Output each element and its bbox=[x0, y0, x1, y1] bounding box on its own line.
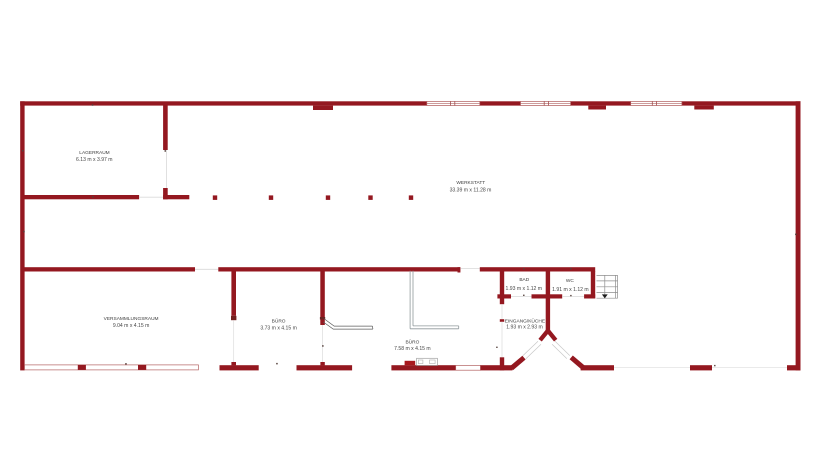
svg-text:EINGANG/KÜCHE: EINGANG/KÜCHE bbox=[505, 317, 545, 324]
svg-text:3.73 m x 4.15 m: 3.73 m x 4.15 m bbox=[260, 325, 297, 331]
svg-text:VERSAMMLUNGSRAUM: VERSAMMLUNGSRAUM bbox=[104, 316, 159, 322]
svg-text:33.39 m x 11.28 m: 33.39 m x 11.28 m bbox=[450, 187, 492, 193]
svg-text:1.93 m x 2.93 m: 1.93 m x 2.93 m bbox=[506, 325, 543, 331]
svg-text:1.91 m x 1.12 m: 1.91 m x 1.12 m bbox=[552, 287, 589, 293]
svg-text:LAGERRAUM: LAGERRAUM bbox=[79, 150, 109, 156]
svg-text:WERKSTATT: WERKSTATT bbox=[456, 180, 485, 186]
svg-text:BÜRO: BÜRO bbox=[272, 317, 286, 324]
svg-text:BÜRO: BÜRO bbox=[405, 338, 419, 345]
svg-text:WC: WC bbox=[566, 278, 575, 284]
svg-text:9.04 m x 4.15 m: 9.04 m x 4.15 m bbox=[113, 323, 150, 329]
svg-text:6.13 m x 3.97 m: 6.13 m x 3.97 m bbox=[76, 157, 113, 163]
svg-text:1.93 m x 1.12 m: 1.93 m x 1.12 m bbox=[506, 286, 543, 292]
svg-text:BAD: BAD bbox=[519, 277, 529, 283]
svg-text:7.58 m x 4.15 m: 7.58 m x 4.15 m bbox=[394, 346, 431, 352]
